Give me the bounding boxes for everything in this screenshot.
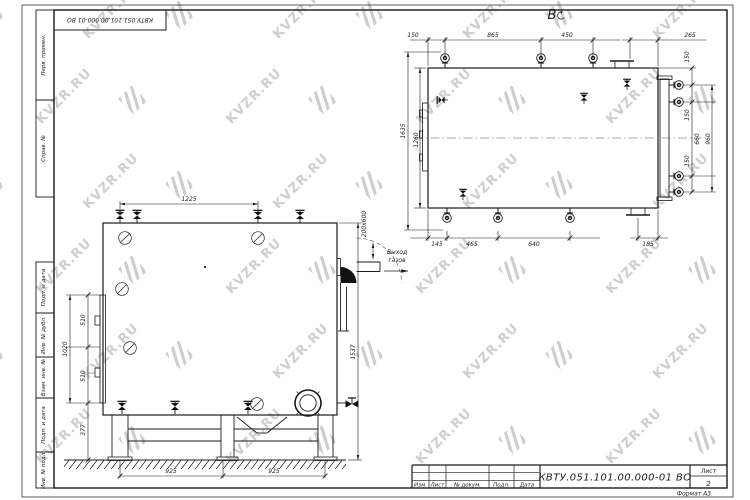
- drawing-canvas: Перв. примен. Справ. № Подп. и дата Инв.…: [0, 0, 750, 500]
- side-label: Взам. инв. №: [41, 359, 47, 397]
- dim-label: 1635: [400, 123, 407, 138]
- title-col-label: Подп.: [493, 483, 510, 489]
- side-label: Подп. и дата: [41, 406, 47, 444]
- top-stamp: КВТУ.051.101.00.000-01 ВО: [54, 10, 166, 30]
- outlet-label: газов: [388, 257, 406, 264]
- sheet-number: 2: [706, 480, 711, 488]
- dim-label: 150: [684, 51, 691, 63]
- view-front-body: [95, 210, 359, 416]
- dim-label: 377: [80, 424, 87, 436]
- dim-label: 465: [466, 241, 478, 248]
- doc-number: КВТУ.051.101.00.000-01 ВО: [538, 473, 691, 484]
- title-col-label: Изм.: [414, 483, 427, 489]
- outlet-size-label: 200x600: [361, 211, 368, 238]
- format-label: Формат А3: [677, 491, 711, 498]
- view-b: В: [400, 8, 716, 248]
- outlet-label: Выход: [387, 249, 407, 256]
- side-label: Инв. № дубл.: [41, 316, 47, 354]
- dim-label: 660: [694, 133, 701, 145]
- rotated-view-icon: [558, 11, 565, 19]
- dim-label: 865: [487, 32, 499, 39]
- top-stamp-text: КВТУ.051.101.00.000-01 ВО: [67, 16, 153, 23]
- side-label: Подп. и дата: [41, 268, 47, 306]
- title-col-label: № докум.: [453, 483, 481, 489]
- dim-label: 925: [268, 468, 280, 475]
- drawing-sheet: KVZR.RUKVZR.RUKVZR.RUKVZR.RUKVZR.RUKVZR.…: [0, 0, 750, 500]
- dim-label: 960: [705, 133, 712, 145]
- view-b-label: В: [548, 8, 557, 23]
- dim-label: 450: [561, 32, 573, 39]
- gas-outlet: 200x600 Выход газов: [337, 211, 408, 331]
- left-column-labels: Перв. примен. Справ. № Подп. и дата Инв.…: [36, 10, 54, 489]
- side-label: Справ. №: [41, 135, 47, 162]
- dim-label: 150: [684, 155, 691, 167]
- dim-label: 1225: [181, 196, 196, 203]
- dim-label: 265: [684, 32, 696, 39]
- side-label: Инв. № подл.: [41, 451, 47, 489]
- dim-label: 150: [407, 32, 419, 39]
- title-col-label: Дата: [519, 483, 535, 489]
- title-block: Изм. Лист № докум. Подп. Дата КВТУ.051.1…: [412, 465, 727, 498]
- view-b-body: [414, 54, 702, 223]
- title-col-label: Лист: [430, 483, 446, 489]
- dim-label: 185: [642, 241, 654, 248]
- sheet-label: Лист: [700, 468, 717, 475]
- dim-label: 150: [684, 109, 691, 121]
- dim-label: 1260: [413, 132, 420, 147]
- dim-label: 510: [80, 370, 87, 382]
- dim-label: 640: [528, 241, 540, 248]
- dim-label: 925: [165, 468, 177, 475]
- dim-label: 510: [80, 314, 87, 326]
- dim-label: 1537: [350, 344, 357, 359]
- support-frame: [64, 415, 346, 469]
- side-label: Перв. примен.: [41, 34, 47, 76]
- dim-label: 145: [431, 241, 443, 248]
- view-front: 200x600 Выход газов: [62, 196, 408, 478]
- dim-label: 1020: [62, 341, 69, 356]
- view-front-dimensions: 1225 510 510 377 1020 1537: [62, 196, 362, 478]
